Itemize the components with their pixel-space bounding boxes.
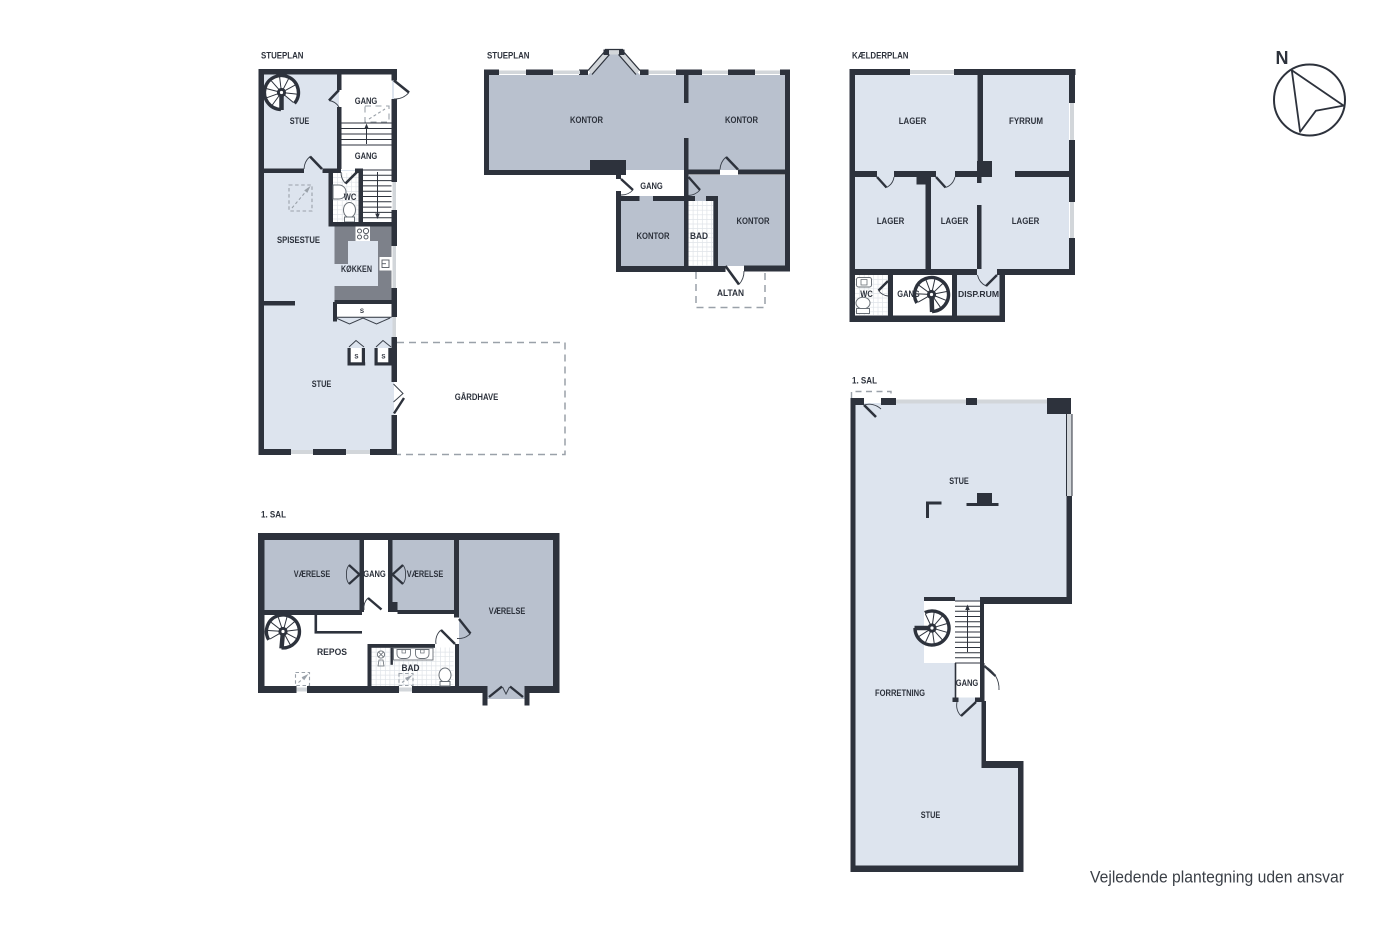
svg-text:REPOS: REPOS xyxy=(317,647,347,657)
svg-text:S: S xyxy=(381,354,385,361)
svg-text:N: N xyxy=(1276,48,1289,68)
svg-text:SPISESTUE: SPISESTUE xyxy=(277,235,320,245)
svg-text:KONTOR: KONTOR xyxy=(570,115,603,125)
svg-text:GANG: GANG xyxy=(355,96,378,106)
svg-text:FYRRUM: FYRRUM xyxy=(1009,116,1043,126)
svg-text:1. SAL: 1. SAL xyxy=(261,510,286,520)
svg-text:KONTOR: KONTOR xyxy=(737,216,770,226)
svg-text:KONTOR: KONTOR xyxy=(725,115,758,125)
svg-text:GÅRDHAVE: GÅRDHAVE xyxy=(455,392,499,402)
svg-text:LAGER: LAGER xyxy=(899,116,927,126)
svg-text:VÆRELSE: VÆRELSE xyxy=(489,606,526,616)
svg-text:GANG: GANG xyxy=(355,151,378,161)
svg-text:STUEPLAN: STUEPLAN xyxy=(487,51,530,61)
svg-text:STUE: STUE xyxy=(290,116,310,126)
svg-text:STUE: STUE xyxy=(312,379,332,389)
svg-text:WC: WC xyxy=(860,289,873,299)
svg-text:STUEPLAN: STUEPLAN xyxy=(261,51,304,61)
svg-text:GANG: GANG xyxy=(956,678,979,688)
svg-text:LAGER: LAGER xyxy=(877,216,905,226)
svg-text:STUE: STUE xyxy=(921,810,941,820)
svg-text:VÆRELSE: VÆRELSE xyxy=(407,569,444,579)
svg-text:BAD: BAD xyxy=(402,663,420,673)
svg-text:GANG: GANG xyxy=(363,569,386,579)
svg-text:LAGER: LAGER xyxy=(1012,216,1040,226)
svg-text:WC: WC xyxy=(344,192,357,202)
svg-text:S: S xyxy=(360,308,364,315)
svg-text:KØKKEN: KØKKEN xyxy=(341,264,372,274)
svg-text:KÆLDERPLAN: KÆLDERPLAN xyxy=(852,51,909,61)
svg-text:GANG: GANG xyxy=(640,181,663,191)
svg-text:S: S xyxy=(354,354,358,361)
svg-text:FORRETNING: FORRETNING xyxy=(875,688,925,698)
svg-text:ALTAN: ALTAN xyxy=(717,288,744,298)
svg-text:GANG: GANG xyxy=(897,289,920,299)
svg-text:KONTOR: KONTOR xyxy=(637,231,670,241)
svg-text:1. SAL: 1. SAL xyxy=(852,376,877,386)
svg-text:Vejledende plantegning uden an: Vejledende plantegning uden ansvar xyxy=(1090,868,1344,887)
svg-text:STUE: STUE xyxy=(949,476,969,486)
svg-text:BAD: BAD xyxy=(690,231,708,241)
svg-text:DISP.RUM: DISP.RUM xyxy=(958,290,999,299)
svg-text:LAGER: LAGER xyxy=(941,216,969,226)
svg-text:VÆRELSE: VÆRELSE xyxy=(294,569,331,579)
